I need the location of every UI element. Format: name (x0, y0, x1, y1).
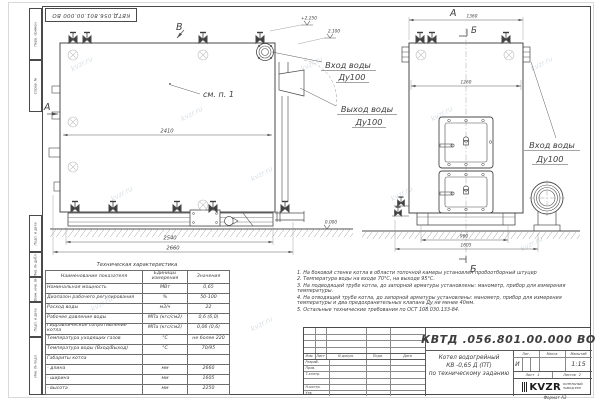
product-line3: по техническому заданию (425, 371, 513, 379)
logo-text: KVZR (529, 382, 561, 393)
dim-2410: 2410 (160, 129, 174, 135)
product-line2: КВ -0,65 Д (ПТ) (425, 363, 513, 371)
product-name: Котел водогрейный КВ -0,65 Д (ПТ) по тех… (425, 350, 513, 396)
tb-row-utv: Утв. (304, 390, 329, 396)
pipe-labels: Вход воды Ду100 Выход воды Ду100 Вход во… (272, 52, 580, 165)
inlet-water-label-front: Вход воды (529, 140, 575, 150)
kvzr-logo: KVZR КОТЕЛЬНЫЙ ЗАВОД РЭП (513, 378, 592, 396)
elev-2100: 2.100 (328, 29, 341, 35)
product-line1: Котел водогрейный (425, 355, 513, 363)
spec-row: - длинамм2660 (46, 364, 230, 374)
tb-scale-header: Масштаб (565, 350, 592, 357)
tb-sheets: Листов2 (552, 371, 592, 378)
spec-row: Температура уходящих газов°Сне более 220 (46, 334, 230, 344)
dim-2660: 2660 (166, 246, 180, 252)
note-3: 3. На подводящей трубе котла, до запорно… (297, 284, 583, 296)
format-label: Формат А3 (518, 395, 592, 400)
spec-row: Рабочее давление водыМПа (кгс/см2)0,6 (6… (46, 314, 230, 324)
dim-1605: 1605 (461, 243, 472, 249)
note-4: 4. На отводящей трубе котла, до запорной… (297, 296, 583, 308)
spec-table-title: Техническая характеристика (45, 262, 229, 268)
spec-row: - ширинамм1605 (46, 374, 230, 384)
dim-1260: 1260 (461, 80, 472, 86)
dim-960: 960 (460, 234, 468, 240)
view-label-b: В (176, 22, 183, 33)
elev-0000: 0.000 (325, 220, 338, 226)
spec-row: Гидравлическое сопротивление котлаМПа (к… (46, 324, 230, 335)
inlet-water-label-side: Вход воды (325, 60, 371, 70)
section-label-a: А (43, 102, 51, 113)
spec-header-value: Значения (188, 271, 230, 284)
view-label-a-front: А (449, 8, 457, 19)
outlet-water-dn: Ду100 (355, 117, 383, 127)
spec-header-unit: Единицы измерения (143, 271, 188, 284)
inlet-water-dn: Ду100 (338, 72, 366, 82)
technical-notes: 1. На боковой стенке котла в области топ… (297, 271, 583, 314)
drawing-sheet: kvzr.ru kvzr.ru kvzr.ru kvzr.ru kvzr.ru … (0, 0, 600, 400)
dim-2540: 2540 (163, 236, 177, 242)
logo-bars-icon (522, 382, 527, 392)
spec-row: - высотамм2250 (46, 384, 230, 394)
tb-scale-value: 1:15 (565, 357, 592, 371)
tb-row-tkontr: Т.контр. (304, 371, 329, 377)
spec-row: Диапазон рабочего регулирования%50-100 (46, 294, 230, 304)
spec-header-row: Наименование показателя Единицы измерени… (46, 271, 230, 284)
title-block: Изм. Лист N докум. Подп. Дата Разраб. Пр… (303, 327, 591, 395)
outlet-water-label: Выход воды (341, 104, 394, 114)
callout-dot (169, 83, 171, 85)
tb-lit-header: Лит. (513, 350, 539, 357)
tb-col-podp: Подп. (366, 353, 390, 359)
spec-row: Габариты котла (46, 354, 230, 364)
spec-row: Расход водым3/ч22 (46, 304, 230, 314)
doc-number: КВТД .056.801.00.000 ВО (425, 328, 592, 350)
see-item-callout: см. п. 1 (203, 90, 234, 99)
tb-col-dokum: N докум. (326, 353, 366, 359)
spec-row: Номинальная мощностьМВт0,65 (46, 284, 230, 294)
elev-2250: +2.250 (301, 16, 317, 22)
note-5: 5. Остальные технические требования по О… (297, 308, 583, 314)
tb-col-data: Дата (390, 353, 425, 359)
tb-lit-value: И (513, 357, 522, 371)
spec-header-name: Наименование показателя (46, 271, 143, 284)
spec-table: Наименование показателя Единицы измерени… (45, 270, 230, 395)
inlet-water-front-dn: Ду100 (536, 154, 564, 164)
tb-sheet: Лист1 (513, 371, 552, 378)
spec-row: Температура воды (Вход/Выход)°С70/95 (46, 344, 230, 354)
logo-subtitle: КОТЕЛЬНЫЙ ЗАВОД РЭП (563, 383, 583, 390)
dim-1360: 1360 (467, 14, 478, 20)
section-label-b-top: Б (471, 26, 477, 36)
tb-mass-header: Масса (539, 350, 565, 357)
